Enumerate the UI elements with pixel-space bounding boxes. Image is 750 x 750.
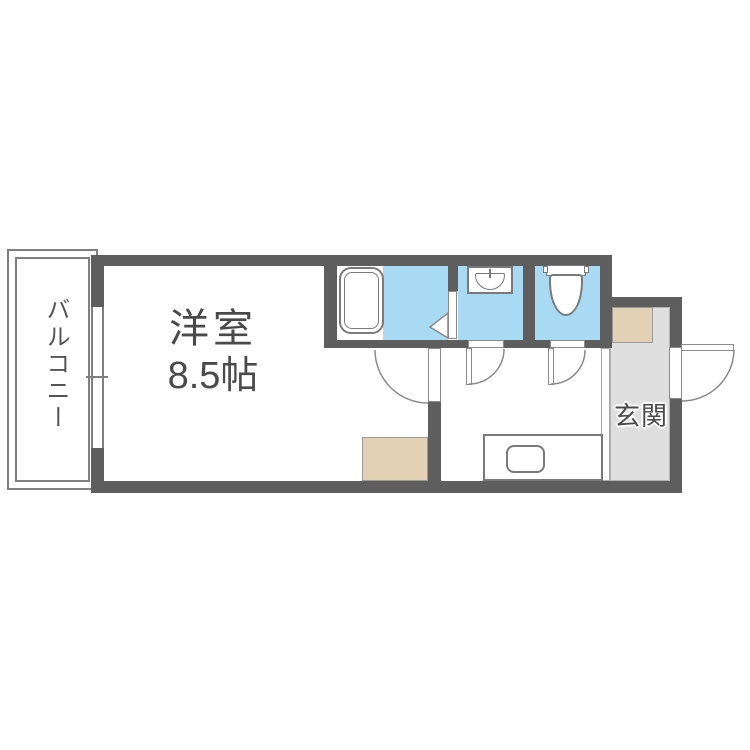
washbasin-tap [489, 269, 491, 278]
shoe-cabinet [612, 307, 653, 343]
washroom-door-opening [468, 340, 504, 348]
wall-hall-mainroom [428, 402, 441, 481]
bathtub-icon [339, 267, 384, 334]
wall-bath-left [324, 266, 337, 340]
main-room-label: 洋室 8.5帖 [103, 306, 323, 400]
main-room-name: 洋室 [103, 306, 323, 353]
bath-folding-door-leaf [448, 291, 457, 339]
wall-entrance-right-upper [670, 297, 682, 347]
main-room-door-opening [428, 348, 441, 402]
toilet-door-opening [550, 340, 585, 348]
wall-bath-bottom-b [504, 340, 550, 348]
wall-bath-wash-divider [448, 266, 458, 291]
wall-bath-bottom-a [324, 340, 468, 348]
toilet-door-arc [551, 350, 585, 384]
wall-toilet-right [600, 266, 612, 340]
entrance-door-opening [669, 347, 682, 399]
washbasin-icon [467, 266, 513, 294]
washroom-door-arc [469, 349, 504, 384]
entrance-label: 玄関 [614, 396, 674, 433]
toilet-tank-tab-left [543, 266, 548, 273]
floor-plan: バルコニー [0, 0, 750, 750]
bathroom-floor [383, 266, 448, 340]
wall-bath-bottom-c [585, 340, 612, 348]
entrance-door-leaf [681, 344, 734, 351]
kitchen-sink-icon [506, 445, 545, 473]
wall-top [91, 255, 612, 266]
main-room-size: 8.5帖 [103, 353, 323, 400]
wall-wash-toilet-divider [523, 266, 535, 340]
entrance-door-arc [682, 350, 734, 401]
toilet-tank-tab-right [584, 266, 589, 273]
wall-left-upper [91, 266, 104, 307]
main-room-door-arc [375, 350, 428, 403]
refrigerator-space [362, 437, 428, 481]
bathtub-inner-line [344, 272, 379, 329]
washroom-door-leaf [466, 348, 472, 385]
balcony-label: バルコニー [38, 297, 73, 457]
wall-bottom [91, 481, 682, 493]
toilet-door-leaf [548, 348, 554, 385]
wall-left-lower [91, 448, 104, 481]
